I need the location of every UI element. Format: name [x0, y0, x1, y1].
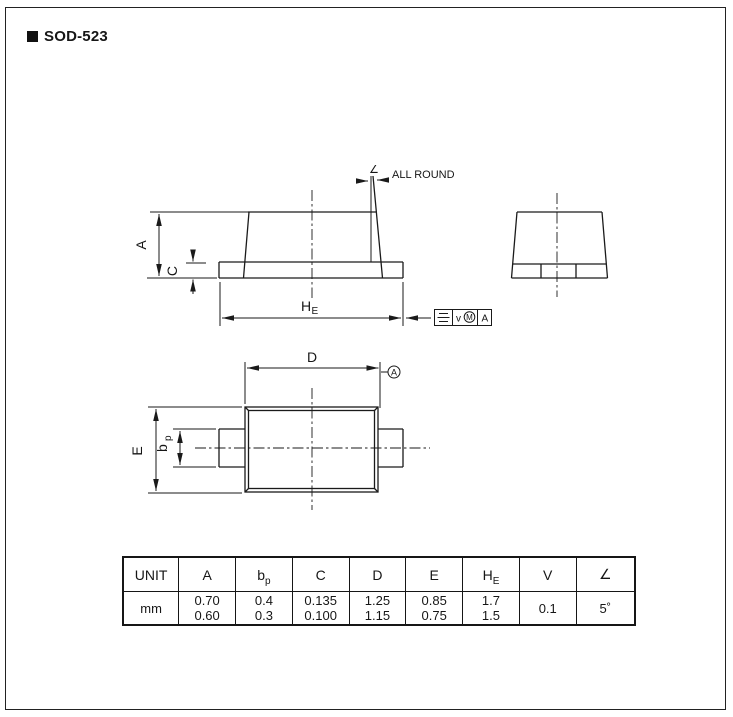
table-header-row: UNIT A bp C D E HE V ∠	[123, 557, 635, 592]
value-D: 1.251.15	[349, 592, 406, 626]
label-C: C	[164, 266, 180, 276]
fcf-tolerance: v	[456, 314, 461, 325]
table-value-row: mm 0.700.60 0.40.3 0.1350.100 1.251.15 0…	[123, 592, 635, 626]
side-view-extension-lines	[147, 176, 403, 326]
all-round-note: ALL ROUND	[392, 169, 455, 181]
col-header-V: V	[519, 557, 576, 592]
value-C: 0.1350.100	[292, 592, 349, 626]
col-header-C: C	[292, 557, 349, 592]
dimension-table: UNIT A bp C D E HE V ∠ mm 0.700.60 0.40.…	[122, 556, 636, 626]
top-view-extension-lines	[148, 362, 388, 493]
col-header-E: E	[406, 557, 463, 592]
value-bp: 0.40.3	[236, 592, 293, 626]
label-A: A	[133, 240, 149, 250]
angle-symbol: ∠	[369, 164, 379, 176]
value-V: 0.1	[519, 592, 576, 626]
end-view-outline	[512, 212, 608, 278]
symmetry-icon	[438, 314, 450, 322]
col-header-HE: HE	[463, 557, 520, 592]
side-view-body-outline	[219, 176, 403, 278]
label-HE-main: H	[301, 298, 311, 314]
unit-header: UNIT	[123, 557, 179, 592]
col-header-A: A	[179, 557, 236, 592]
body-inner-rect	[249, 411, 375, 489]
value-angle: 5˚	[576, 592, 635, 626]
datum-label: A	[391, 368, 397, 378]
fcf-modifier: M	[466, 313, 473, 322]
label-D: D	[307, 349, 317, 365]
corner-chamfers	[245, 407, 378, 492]
unit-value: mm	[123, 592, 179, 626]
end-view	[512, 193, 608, 297]
side-view: A C H E ∠ ALL ROUND v M A	[133, 164, 492, 326]
label-HE-sub: E	[312, 306, 319, 317]
col-header-bp: bp	[236, 557, 293, 592]
col-header-angle: ∠	[576, 557, 635, 592]
value-E: 0.850.75	[406, 592, 463, 626]
value-A: 0.700.60	[179, 592, 236, 626]
label-bp-main: b	[154, 444, 170, 452]
label-bp-sub: p	[163, 435, 174, 441]
feature-control-frame: v M A	[435, 310, 492, 326]
col-header-D: D	[349, 557, 406, 592]
fcf-datum-ref: A	[482, 314, 489, 325]
label-E: E	[129, 446, 145, 455]
value-HE: 1.71.5	[463, 592, 520, 626]
body-outer-rect	[245, 407, 378, 492]
top-view: A D E b p	[129, 349, 430, 510]
